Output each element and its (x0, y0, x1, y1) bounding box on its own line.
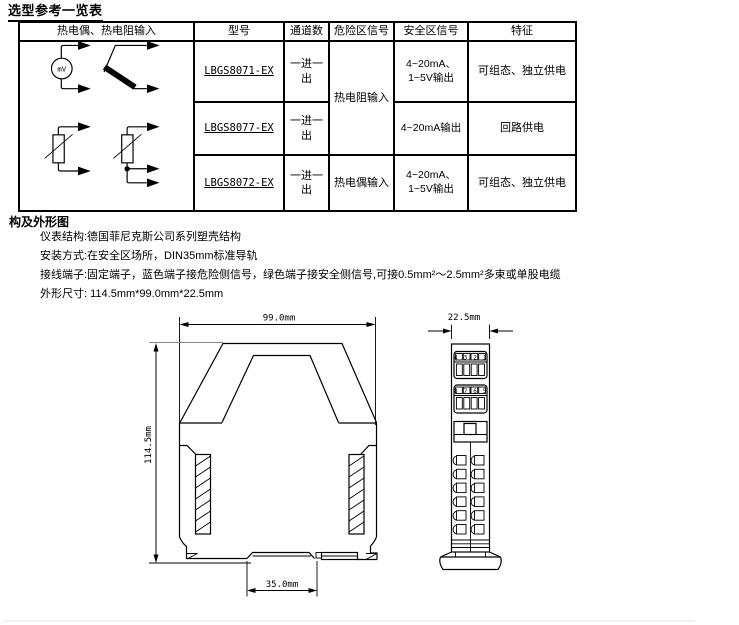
svg-text:114.5mm: 114.5mm (144, 426, 154, 464)
spec-line-terminals: 接线端子:固定端子，蓝色端子接危险侧信号，绿色端子接安全侧信号,可接0.5mm²… (40, 266, 561, 285)
dim-depth-22: 22.5mm (428, 313, 513, 339)
junction-dot (124, 166, 129, 171)
outline-drawings: 99.0mm 114.5mm (0, 308, 739, 625)
model-link[interactable]: LBGS8077-EX (204, 122, 274, 134)
datasheet-page: { "title": "选型参考一览表", "table": { "header… (0, 0, 739, 625)
svg-text:99.0mm: 99.0mm (263, 314, 296, 324)
channels-cell: 一进一出 (284, 102, 329, 155)
side-windows (453, 456, 484, 535)
mv-source-icon: mV (51, 45, 78, 88)
hazard-signal-cell: 热电阻输入 (329, 41, 394, 155)
safe-signal-cell: 4~20mA、1~5V输出 (394, 155, 468, 211)
model-link[interactable]: LBGS8071-EX (204, 65, 274, 77)
terminal-block-bottom: 8 7 6 5 (454, 385, 488, 413)
spec-line-structure: 仪表结构:德国菲尼克斯公司系列塑壳结构 (40, 228, 561, 247)
table-header-row: 热电偶、热电阻输入 型号 通道数 危险区信号 安全区信号 特征 (19, 22, 576, 41)
side-view-drawing: 22.5mm 4 3 2 1 (428, 313, 513, 570)
header-input: 热电偶、热电阻输入 (19, 22, 194, 41)
channels-cell: 一进一出 (284, 41, 329, 102)
input-symbols-drawing: mV (20, 42, 192, 210)
header-hazard: 危险区信号 (329, 22, 394, 41)
channels-cell: 一进一出 (284, 155, 329, 211)
spec-line-dimensions: 外形尺寸: 114.5mm*99.0mm*22.5mm (40, 285, 561, 304)
din-rail-foot (180, 537, 378, 560)
feature-cell: 回路供电 (468, 102, 576, 155)
dim-rail-35: 35.0mm (247, 561, 317, 597)
hazard-signal-cell: 热电偶输入 (329, 155, 394, 211)
safe-signal-cell: 4~20mA、1~5V输出 (394, 41, 468, 102)
model-link[interactable]: LBGS8072-EX (204, 177, 274, 189)
header-channels: 通道数 (284, 22, 329, 41)
feature-cell: 可组态、独立供电 (468, 41, 576, 102)
terminal-block-top: 4 3 2 1 (454, 352, 488, 379)
terminal-numbers-top: 4 3 2 1 (454, 354, 488, 361)
svg-text:mV: mV (57, 64, 66, 73)
spec-line-mounting: 安装方式:在安全区场所，DIN35mm标准导轨 (40, 247, 561, 266)
config-switch (454, 422, 487, 443)
svg-text:22.5mm: 22.5mm (448, 313, 481, 323)
front-view-drawing: 99.0mm 114.5mm (144, 314, 377, 597)
safe-signal-cell: 4~20mA输出 (394, 102, 468, 155)
terminal-strip-right (349, 455, 364, 535)
thermocouple-icon (104, 45, 147, 88)
terminal-strip-left (196, 455, 211, 535)
page-title: 选型参考一览表 (8, 0, 103, 22)
rtd-2wire-icon (45, 127, 78, 171)
input-symbols-cell: mV (19, 41, 194, 211)
spec-lines: 仪表结构:德国菲尼克斯公司系列塑壳结构 安装方式:在安全区场所，DIN35mm标… (40, 228, 561, 304)
feature-cell: 可组态、独立供电 (468, 155, 576, 211)
side-din-foot (440, 552, 501, 570)
header-feature: 特征 (468, 22, 576, 41)
selection-table: 热电偶、热电阻输入 型号 通道数 危险区信号 安全区信号 特征 mV (18, 21, 577, 212)
rtd-3wire-icon (113, 127, 146, 183)
table-row: mV (19, 41, 576, 102)
header-safe: 安全区信号 (394, 22, 468, 41)
dim-height-114: 114.5mm (144, 343, 251, 564)
svg-text:35.0mm: 35.0mm (266, 580, 299, 590)
header-model: 型号 (194, 22, 284, 41)
terminal-numbers-bottom: 8 7 6 5 (454, 388, 488, 395)
